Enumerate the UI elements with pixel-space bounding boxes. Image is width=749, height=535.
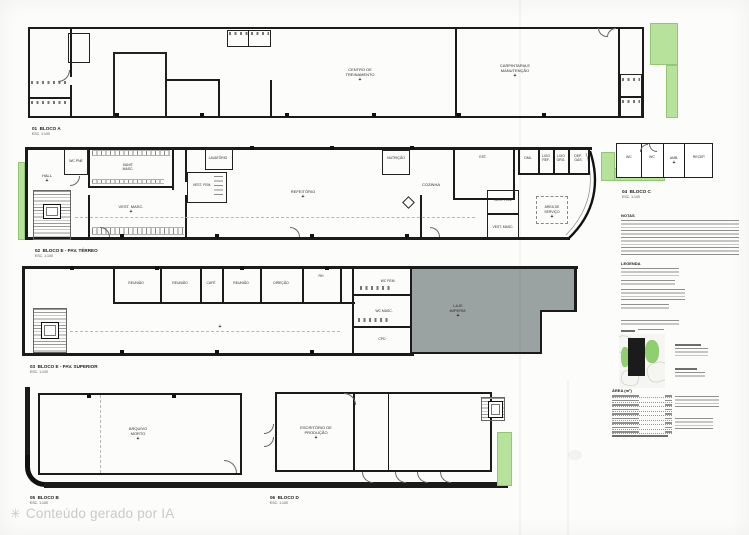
wc-fixtures [214, 176, 223, 198]
wall-segment [218, 79, 220, 118]
room-label: LAVATÓRIO [209, 156, 228, 160]
room-name: DML [524, 156, 531, 160]
wall-segment [352, 266, 354, 356]
bench-row [92, 150, 170, 156]
ai-sparkle-icon: ✳ [10, 507, 21, 520]
room-name: DEP. GÁS [574, 154, 581, 162]
column [457, 113, 461, 117]
wall-segment [160, 266, 162, 303]
wall-segment [663, 143, 664, 178]
map-caption-lines [638, 329, 664, 332]
info-text-lines [621, 304, 669, 311]
column [172, 394, 176, 398]
level-marker-icon: + [42, 179, 52, 184]
area-table-row [612, 417, 672, 421]
plan-scale: ESC. 1:100 [35, 254, 98, 259]
column [405, 234, 409, 238]
room-name: ESCRITÓRIO DE PRODUÇÃO [300, 425, 332, 435]
landscape-area [497, 432, 512, 486]
bench-row [92, 179, 164, 184]
road-edge [25, 387, 30, 465]
info-text-lines [621, 320, 679, 325]
area-table-row [612, 412, 672, 416]
room-label: CPD [378, 337, 385, 341]
credits-heading-bar [675, 344, 701, 346]
room-label: VEST. MASC. [492, 225, 513, 229]
room-label: LAJE IMPERM. + [449, 298, 466, 324]
room-label: SANIT. MASC. [123, 163, 134, 172]
info-text-lines [621, 289, 685, 300]
kitchen-island [402, 196, 415, 209]
wall-segment [167, 79, 220, 81]
room-name: CARPINTARIA E MANUTENÇÃO [500, 63, 530, 73]
map-title-bar [621, 330, 635, 332]
wall-segment [388, 392, 389, 472]
area-table-row [612, 421, 672, 425]
map-sketch [645, 359, 665, 384]
landscape-area [18, 162, 25, 240]
plan-name: BLOCO A [40, 126, 61, 131]
wall-segment [553, 147, 555, 175]
column [70, 266, 74, 270]
room-name: CAFÉ [206, 281, 215, 285]
room-name: LAJE IMPERM. [449, 303, 466, 313]
wall-segment [22, 266, 578, 269]
reference-line [100, 395, 101, 473]
wall-segment [410, 266, 412, 356]
room-name: WC PNE [69, 159, 83, 163]
wall-segment [340, 266, 342, 303]
room-label: CARPINTARIA E MANUTENÇÃO + [500, 58, 530, 84]
room-label: CENTRO DE TREINAMENTO + [345, 62, 374, 88]
info-text-lines [621, 280, 675, 286]
ai-watermark-text: Conteúdo gerado por IA [26, 506, 175, 521]
room-name: REUNIÃO [128, 281, 143, 285]
room-label: RECEP. [693, 155, 705, 159]
room-label: AMB. + [670, 152, 678, 171]
wall-segment [518, 173, 590, 175]
column [250, 146, 254, 150]
column [155, 266, 159, 270]
wall-segment [22, 266, 25, 356]
room-name: VEST. MASC. [492, 225, 513, 229]
room-label: REUNIÃO [172, 281, 187, 285]
plan-name: BLOCO E - PAV. SUPERIOR [38, 364, 98, 369]
wall-segment [352, 326, 412, 328]
wall-segment [352, 294, 412, 296]
wall-segment [455, 27, 457, 118]
room-name: REUNIÃO [233, 281, 248, 285]
room-label: LIXO REF. [542, 154, 550, 163]
room-name: NUTRIÇÃO [387, 156, 405, 160]
area-table-row [612, 426, 672, 430]
room-label: RH [319, 274, 324, 278]
room-name: EST. [479, 155, 486, 159]
room-name: CENTRO DE TREINAMENTO [345, 67, 374, 77]
landscape-area [666, 65, 678, 118]
room-label: REUNIÃO [128, 281, 143, 285]
reference-line [70, 331, 340, 332]
room-outline [68, 33, 90, 63]
column [410, 146, 414, 150]
plan-title: 03BLOCO E - PAV. SUPERIOR ESC. 1:100 [30, 364, 98, 375]
room-label: DML [524, 156, 531, 160]
wall-segment [172, 147, 174, 190]
floor-plan-sheet: CENTRO DE TREINAMENTO + CARPINTARIA E MA… [0, 0, 749, 535]
plan-number: 01 [32, 126, 37, 131]
room-label: CAFÉ [206, 281, 215, 285]
room-label: WC FEM. [381, 279, 396, 283]
room-label: REFEITÓRIO + [291, 184, 315, 205]
wall-segment [70, 85, 72, 118]
wc-fixtures [360, 286, 390, 290]
column [120, 350, 124, 354]
column [240, 266, 244, 270]
room-name: VEST. FEM. [494, 198, 512, 202]
wall-segment [453, 147, 455, 200]
location-map [619, 334, 665, 388]
wall-segment [25, 147, 28, 240]
wall-segment [222, 266, 224, 303]
wall-segment [270, 80, 272, 117]
room-label: HALL + [42, 168, 52, 189]
column [285, 113, 289, 117]
column [310, 234, 314, 238]
scan-smudge [568, 450, 582, 460]
room-outline [113, 52, 167, 118]
level-marker-icon: + [345, 78, 374, 83]
plan-scale: ESC. 1:100 [30, 370, 98, 375]
wc-fixtures [229, 32, 269, 35]
wc-fixtures [622, 100, 640, 103]
column [215, 350, 219, 354]
plan-number: 03 [30, 364, 35, 369]
notes-title: NOTAS [621, 213, 635, 218]
room-label: ESCRITÓRIO DE PRODUÇÃO + [300, 420, 332, 446]
notes-text-lines [621, 220, 739, 257]
room-name: REUNIÃO [172, 281, 187, 285]
area-table-row [612, 408, 672, 412]
column [87, 394, 91, 398]
level-marker-icon: + [291, 195, 315, 200]
door-arc [264, 437, 274, 447]
wc-fixtures [31, 101, 67, 104]
room-name: LIXO ORG. [557, 154, 566, 162]
room-label: DEP. GÁS [574, 154, 581, 163]
level-marker-icon: + [670, 161, 678, 166]
room-label: REUNIÃO [233, 281, 248, 285]
column [115, 113, 119, 117]
room-name: LIXO REF. [542, 154, 550, 162]
room-name: WC FEM. [381, 279, 396, 283]
wall-segment [260, 266, 262, 303]
wall-segment [487, 213, 519, 215]
column [372, 113, 376, 117]
door-arc [290, 227, 300, 237]
level-marker-icon: + [129, 437, 147, 442]
level-marker-icon: + [119, 210, 144, 215]
level-marker-icon: + [449, 314, 466, 319]
plan-scale: ESC. 1:100 [30, 501, 59, 506]
room-name: CPD [378, 337, 385, 341]
room-label: NUTRIÇÃO [387, 156, 405, 160]
room-label: VEST. MASC. + [119, 199, 144, 220]
column [325, 266, 329, 270]
room-label: EST. [479, 155, 486, 159]
wc-fixtures [622, 78, 640, 81]
room-name: WC [626, 155, 632, 159]
plan-scale: ESC. 1:100 [270, 501, 299, 506]
plan-name: BLOCO D [278, 495, 299, 500]
elevator [488, 401, 503, 418]
area-table-total-bar [612, 435, 668, 437]
plan-scale: ESC. 1:100 [32, 132, 61, 137]
door-arc [70, 176, 80, 186]
room-label: ÁREA DE SERVIÇO + [544, 201, 559, 224]
wall-segment [302, 266, 304, 303]
wall-segment [540, 310, 577, 312]
plan-title: 02BLOCO E - PAV. TÉRREO ESC. 1:100 [35, 248, 98, 259]
wall-segment [88, 147, 90, 187]
level-marker-icon: + [544, 215, 559, 220]
plan-name: BLOCO E - PAV. TÉRREO [43, 248, 98, 253]
wall-segment [620, 96, 642, 98]
room-label: WC PNE [69, 159, 83, 163]
column [542, 113, 546, 117]
column [330, 146, 334, 150]
wall-segment [538, 147, 540, 175]
wall-segment [684, 143, 685, 178]
door-arc [430, 227, 440, 237]
wall-segment [113, 266, 115, 303]
plan-title: 06BLOCO D ESC. 1:100 [270, 495, 299, 506]
room-label: LIXO ORG. [557, 154, 566, 163]
room-name: WC MASC. [375, 309, 392, 313]
area-table-row [612, 403, 672, 407]
room-label: DIREÇÃO [273, 281, 288, 285]
wall-segment [588, 147, 590, 175]
firm-text-lines [675, 396, 719, 407]
legend-title: LEGENDA [621, 261, 641, 266]
level-marker-icon: + [300, 436, 332, 441]
room-label: VEST. FEM. [494, 198, 512, 202]
plan-name: BLOCO C [630, 189, 651, 194]
column [200, 113, 204, 117]
room-label: WC [649, 155, 655, 159]
plan-name: BLOCO B [38, 495, 59, 500]
wall-segment [28, 97, 70, 99]
owner-heading-bar [675, 368, 697, 370]
wall-segment [200, 266, 202, 303]
column [215, 234, 219, 238]
map-site-footprint [628, 338, 645, 376]
column [120, 234, 124, 238]
plan-number: 05 [30, 495, 35, 500]
area-table-title: ÁREA (m²) [612, 388, 632, 393]
room-label: COZINHA [422, 182, 440, 187]
area-table-row [612, 399, 672, 403]
door-arc [264, 424, 274, 434]
ai-watermark: ✳ Conteúdo gerado por IA [10, 506, 174, 521]
room-name: COZINHA [422, 182, 440, 187]
map-green-area [645, 340, 659, 363]
owner-text-lines [675, 372, 705, 378]
slab-area [412, 268, 576, 312]
room-name: WC [649, 155, 655, 159]
credits-text-lines [675, 348, 708, 358]
room-label: ARQUIVO MORTO + [129, 421, 147, 447]
wc-fixtures [358, 318, 388, 322]
room-name: LAVATÓRIO [209, 156, 228, 160]
column [310, 350, 314, 354]
room-name: DIREÇÃO [273, 281, 288, 285]
landscape-area [601, 152, 615, 181]
level-marker-icon: + [500, 74, 530, 79]
plan-number: 02 [35, 248, 40, 253]
level-marker: + [219, 324, 222, 330]
room-name: RECEP. [693, 155, 705, 159]
plan-title: 01BLOCO A ESC. 1:100 [32, 126, 61, 137]
room-label: WC [626, 155, 632, 159]
room-name: SANIT. MASC. [123, 163, 134, 171]
room-label: VEST. FEM. [193, 183, 211, 187]
room-outline [382, 150, 410, 175]
wall-segment [568, 147, 570, 175]
wall-segment [412, 352, 542, 354]
wall-segment [113, 302, 355, 304]
room-name: VEST. FEM. [193, 183, 211, 187]
area-table-row [612, 430, 672, 434]
plan-title: 04BLOCO C ESC. 1:100 [622, 189, 651, 200]
landscape-area [650, 23, 678, 65]
wall-segment [574, 266, 577, 312]
room-name: ARQUIVO MORTO [129, 426, 147, 436]
road-edge [44, 482, 508, 488]
legend-text-lines [621, 268, 679, 276]
wall-segment [540, 310, 542, 354]
building-outline [616, 143, 713, 178]
slab-area [412, 312, 542, 353]
room-name: RH [319, 274, 324, 278]
level-marker-icon: + [219, 325, 222, 330]
room-label: WC MASC. [375, 309, 392, 313]
plan-scale: ESC. 1:100 [622, 195, 651, 200]
room-name: ÁREA DE SERVIÇO [544, 205, 559, 213]
contact-text-lines [675, 418, 713, 431]
elevator [41, 322, 59, 339]
plan-number: 04 [622, 189, 627, 194]
plan-title: 05BLOCO B ESC. 1:100 [30, 495, 59, 506]
wall-segment [88, 186, 174, 188]
plan-number: 06 [270, 495, 275, 500]
elevator [43, 204, 61, 219]
area-table-row [612, 394, 672, 398]
